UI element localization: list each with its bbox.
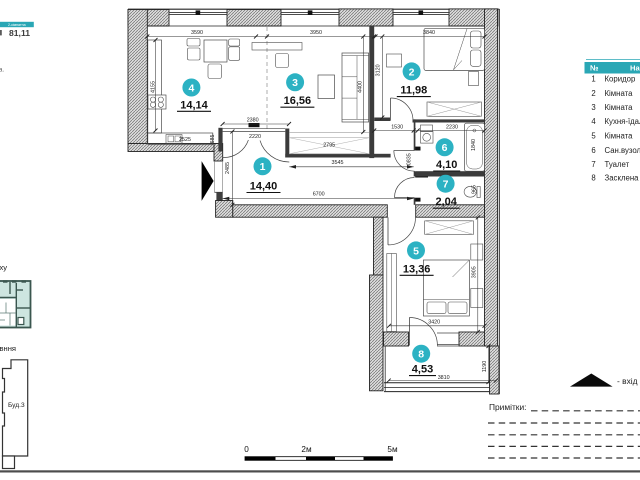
- svg-text:8: 8: [418, 349, 424, 361]
- svg-text:3905: 3905: [472, 266, 478, 278]
- svg-text:3: 3: [292, 77, 298, 89]
- svg-text:6700: 6700: [313, 192, 325, 198]
- svg-text:№: №: [590, 64, 598, 73]
- svg-text:Засклена лоджія: Засклена лоджія: [605, 174, 640, 183]
- svg-text:2485: 2485: [225, 162, 231, 174]
- svg-text:ху: ху: [0, 263, 7, 272]
- svg-text:4: 4: [591, 117, 596, 126]
- svg-text:га.: га.: [0, 68, 4, 74]
- svg-text:0: 0: [244, 445, 249, 454]
- svg-text:7: 7: [591, 160, 595, 169]
- svg-text:4155: 4155: [150, 81, 156, 93]
- svg-text:8: 8: [591, 174, 595, 183]
- svg-text:1: 1: [260, 161, 266, 173]
- svg-text:2230: 2230: [446, 124, 458, 130]
- svg-text:Туалет: Туалет: [605, 160, 630, 169]
- svg-text:0835: 0835: [407, 153, 413, 165]
- svg-text:6: 6: [591, 146, 595, 155]
- svg-text:5м: 5м: [387, 445, 398, 454]
- svg-text:4,53: 4,53: [412, 364, 433, 376]
- svg-text:3590: 3590: [191, 30, 203, 36]
- svg-text:2: 2: [409, 66, 415, 78]
- svg-text:3: 3: [591, 103, 595, 112]
- svg-text:Кімната: Кімната: [605, 89, 634, 98]
- svg-text:2220: 2220: [249, 134, 261, 140]
- svg-text:16,56: 16,56: [284, 95, 312, 107]
- svg-text:2-кімнатна: 2-кімнатна: [8, 23, 26, 27]
- svg-text:14,40: 14,40: [250, 181, 278, 193]
- svg-text:3120: 3120: [376, 64, 382, 76]
- svg-text:Найменування: Найменування: [630, 64, 640, 73]
- svg-text:Буд.3: Буд.3: [8, 402, 25, 409]
- svg-text:2м: 2м: [301, 445, 312, 454]
- svg-text:14,14: 14,14: [180, 99, 208, 111]
- svg-text:- вхід: - вхід: [617, 376, 638, 386]
- svg-text:3420: 3420: [428, 319, 440, 325]
- svg-text:685: 685: [210, 135, 216, 144]
- svg-text:Кухня-їдальня: Кухня-їдальня: [605, 117, 640, 126]
- svg-text:4400: 4400: [357, 81, 363, 93]
- svg-text:6: 6: [442, 142, 448, 154]
- svg-text:2525: 2525: [179, 137, 191, 143]
- svg-text:5: 5: [413, 245, 419, 257]
- svg-text:7: 7: [443, 179, 449, 191]
- svg-text:1840: 1840: [471, 139, 477, 151]
- svg-text:2,04: 2,04: [435, 196, 457, 208]
- svg-text:1530: 1530: [391, 124, 403, 130]
- svg-text:965: 965: [472, 185, 478, 194]
- svg-text:3810: 3810: [438, 375, 450, 381]
- svg-text:3950: 3950: [310, 30, 322, 36]
- svg-text:Кімната: Кімната: [605, 103, 634, 112]
- svg-text:4,10: 4,10: [436, 159, 457, 171]
- svg-text:1: 1: [591, 75, 595, 84]
- svg-text:Коридор: Коридор: [605, 75, 636, 84]
- svg-text:Примітки:: Примітки:: [489, 402, 526, 412]
- svg-text:4: 4: [188, 82, 194, 94]
- svg-text:11,98: 11,98: [400, 85, 427, 97]
- svg-text:1190: 1190: [482, 361, 488, 373]
- svg-text:вння: вння: [0, 344, 16, 353]
- svg-text:3545: 3545: [332, 160, 344, 166]
- svg-text:2: 2: [591, 89, 595, 98]
- svg-text:81,11: 81,11: [9, 28, 30, 38]
- svg-text:Кімната: Кімната: [605, 132, 634, 141]
- svg-text:Сан.вузол: Сан.вузол: [605, 146, 640, 155]
- svg-text:2795: 2795: [323, 142, 335, 148]
- svg-text:3840: 3840: [423, 30, 435, 36]
- svg-text:5: 5: [591, 132, 596, 141]
- svg-text:2380: 2380: [247, 118, 259, 124]
- svg-text:13,36: 13,36: [403, 263, 431, 275]
